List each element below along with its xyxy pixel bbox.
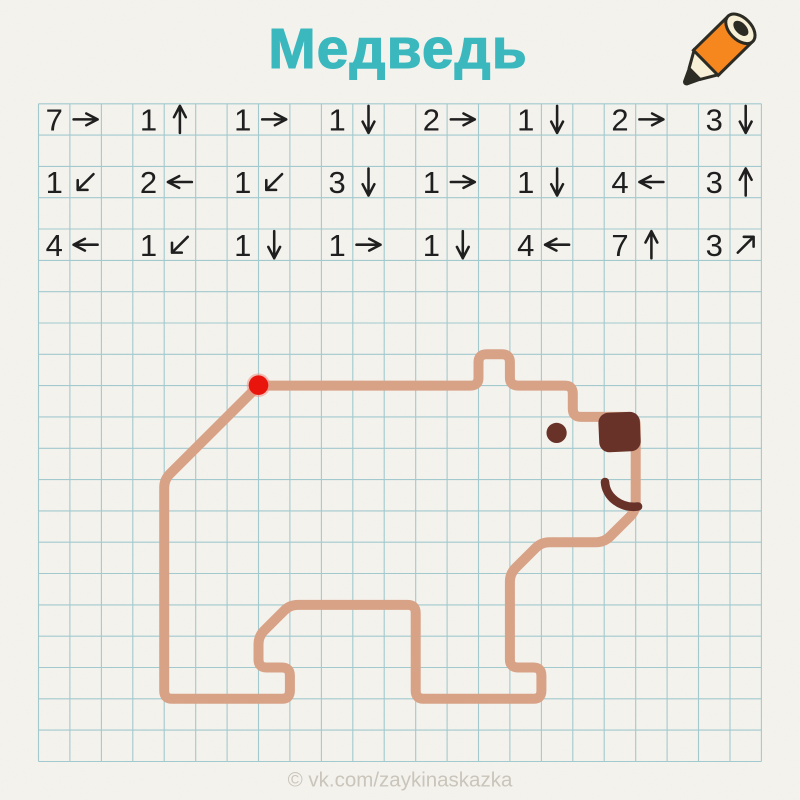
svg-text:2: 2 [140,165,157,200]
svg-text:1: 1 [234,103,251,138]
svg-text:1: 1 [140,228,157,263]
svg-text:3: 3 [706,228,723,263]
svg-text:1: 1 [46,165,63,200]
svg-text:1: 1 [328,103,345,138]
svg-text:3: 3 [328,165,345,200]
svg-text:1: 1 [234,165,251,200]
svg-text:4: 4 [46,228,63,263]
svg-text:7: 7 [611,228,628,263]
svg-text:7: 7 [46,103,63,138]
svg-text:4: 4 [611,165,628,200]
svg-text:1: 1 [517,165,534,200]
svg-text:© vk.com/zaykinaskazka: © vk.com/zaykinaskazka [288,769,513,792]
svg-text:1: 1 [234,228,251,263]
svg-text:1: 1 [140,103,157,138]
svg-text:4: 4 [517,228,534,263]
svg-text:1: 1 [423,228,440,263]
svg-text:2: 2 [423,103,440,138]
svg-text:1: 1 [423,165,440,200]
svg-text:1: 1 [517,103,534,138]
svg-text:Медведь: Медведь [268,17,528,81]
svg-text:2: 2 [611,103,628,138]
svg-text:1: 1 [328,228,345,263]
svg-text:3: 3 [706,103,723,138]
svg-text:3: 3 [706,165,723,200]
